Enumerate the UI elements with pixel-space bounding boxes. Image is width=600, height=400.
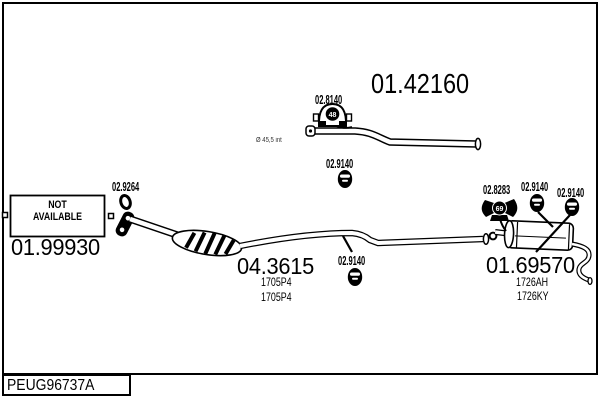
clamp-48-icon: 48 [314, 104, 352, 126]
part-number-front-pipe: 01.42160 [371, 70, 469, 98]
part-number-hanger-rear-left: 02.9140 [521, 180, 548, 193]
hanger-rear-left-icon [530, 194, 544, 212]
drawing-code: PEUG96737A [7, 378, 94, 394]
part-number-clamp-front: 02.8140 [315, 93, 342, 106]
catalyst-icon [171, 226, 244, 260]
connector-mark-right [109, 214, 114, 219]
hanger-center-icon [348, 268, 362, 286]
part-number-ring-gasket: 02.9264 [112, 180, 139, 193]
clamp-69-badge: 69 [496, 206, 504, 213]
oe-code-rear-2: 1726KY [517, 290, 549, 302]
part-number-clamp-rear: 02.8283 [483, 183, 510, 196]
part-number-rear-silencer: 01.69570 [486, 254, 575, 277]
pipe-diameter-note: Ø 45,5 int [256, 137, 282, 144]
connector-mark-left [3, 213, 8, 218]
tailpipe-drawing [572, 244, 592, 284]
not-available-line2: AVAILABLE [20, 212, 96, 224]
hanger-front-icon [338, 170, 352, 188]
part-number-front-section: 01.99930 [11, 236, 100, 259]
oe-code-rear-1: 1726AH [516, 276, 548, 288]
oe-code-center-2: 1705P4 [261, 291, 292, 303]
not-available-label: NOT AVAILABLE [10, 200, 105, 223]
clamp-48-badge: 48 [329, 112, 337, 119]
parts-diagram-page: 48 [0, 0, 600, 400]
hanger-rear-right-icon [565, 198, 579, 216]
part-number-hanger-center: 02.9140 [338, 254, 365, 267]
ring-gasket-icon [119, 194, 132, 209]
clamp-69-icon: 69 [482, 199, 518, 221]
part-number-hanger-front: 02.9140 [326, 157, 353, 170]
oe-code-center-1: 1705P4 [261, 276, 292, 288]
flange-joint-icon [114, 210, 136, 239]
part-number-hanger-rear-right: 02.9140 [557, 186, 584, 199]
